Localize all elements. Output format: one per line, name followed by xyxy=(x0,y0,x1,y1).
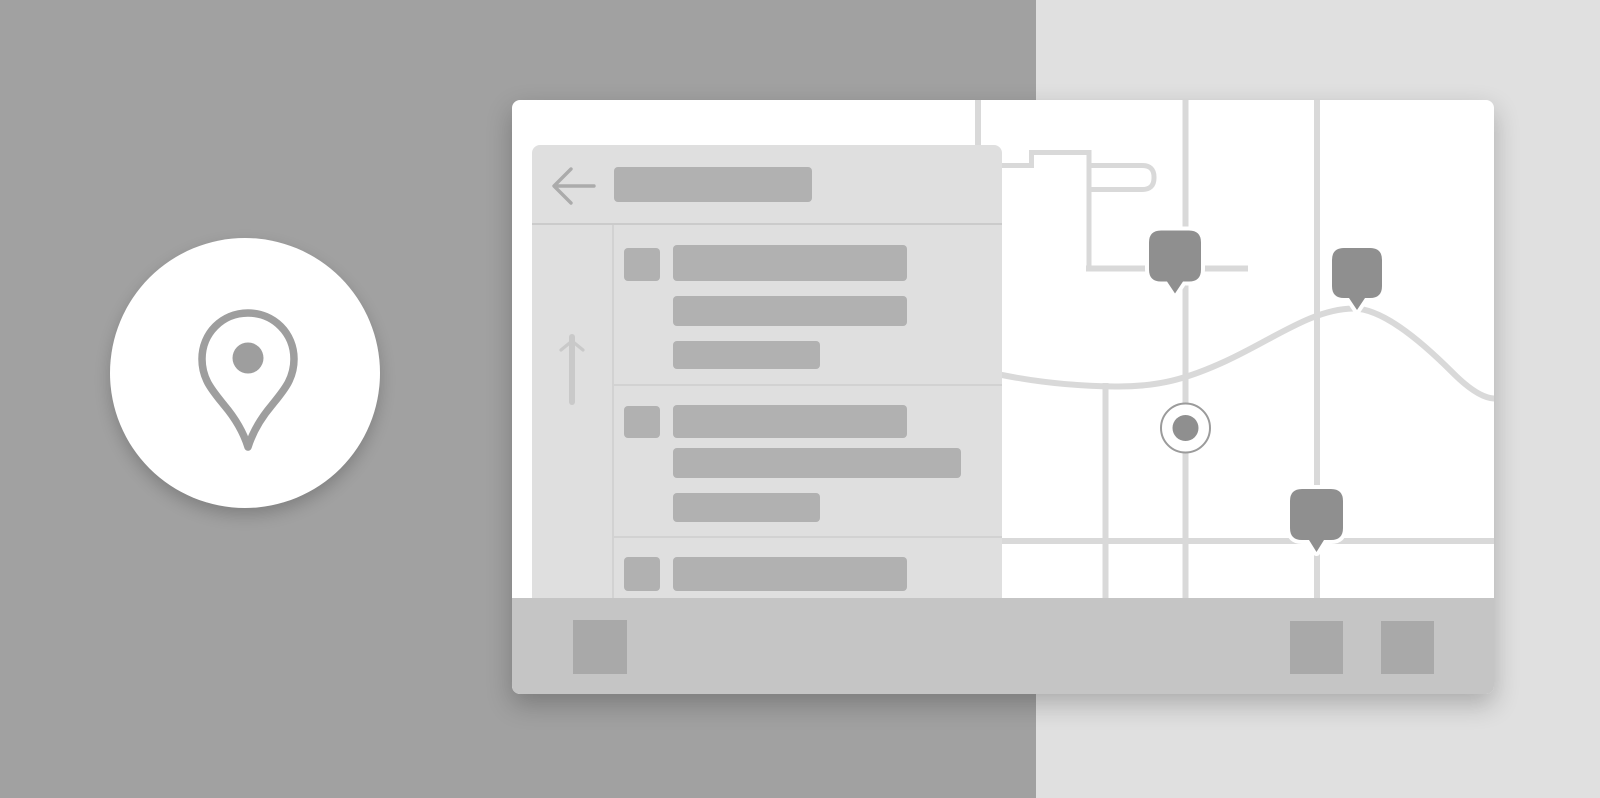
list-divider xyxy=(614,384,1002,386)
street-loop xyxy=(1089,166,1154,190)
map-marker-1[interactable] xyxy=(1149,231,1201,294)
scrollbar[interactable] xyxy=(532,225,614,598)
bottom-toolbar xyxy=(512,598,1494,694)
street-outline xyxy=(1002,153,1089,269)
item-line-placeholder xyxy=(673,493,820,522)
toolbar-button-right-1[interactable] xyxy=(1290,621,1343,674)
back-button[interactable] xyxy=(550,165,598,207)
road-curved xyxy=(1002,308,1494,398)
item-line-placeholder xyxy=(673,296,907,326)
arrow-left-icon xyxy=(554,169,594,203)
map-marker-2[interactable] xyxy=(1332,248,1382,310)
panel-title-placeholder xyxy=(614,167,812,202)
map-pin-badge xyxy=(110,238,380,508)
item-line-placeholder xyxy=(673,341,820,369)
item-title-placeholder xyxy=(673,557,907,591)
scrollbar-thumb[interactable] xyxy=(569,334,575,405)
app-window xyxy=(512,100,1494,694)
map-pin-icon xyxy=(110,238,380,508)
toolbar-button-right-2[interactable] xyxy=(1381,621,1434,674)
item-line-placeholder xyxy=(673,448,961,478)
item-checkbox-placeholder[interactable] xyxy=(624,406,660,438)
item-title-placeholder xyxy=(673,405,907,438)
list-divider xyxy=(614,536,1002,538)
current-location-dot[interactable] xyxy=(1161,404,1210,453)
panel-header xyxy=(532,145,1002,225)
item-checkbox-placeholder[interactable] xyxy=(624,248,660,281)
side-panel xyxy=(532,145,1002,598)
toolbar-button-left[interactable] xyxy=(573,620,627,674)
item-checkbox-placeholder[interactable] xyxy=(624,557,660,591)
item-title-placeholder xyxy=(673,245,907,281)
map-marker-3[interactable] xyxy=(1290,489,1343,552)
